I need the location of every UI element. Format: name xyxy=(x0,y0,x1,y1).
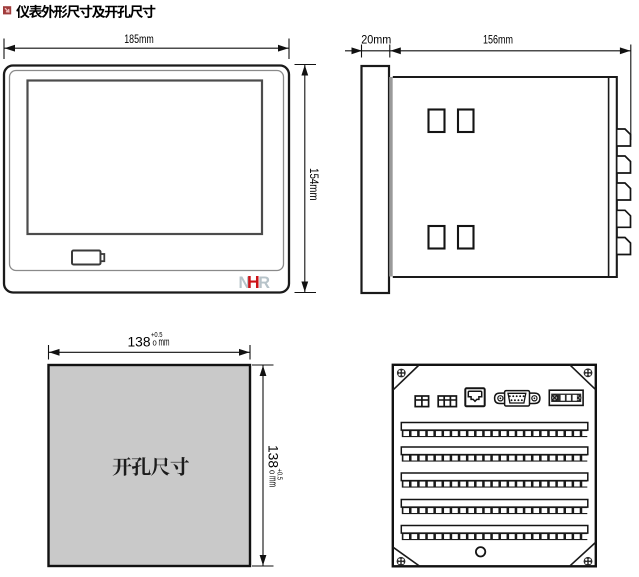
svg-text:138: 138 xyxy=(128,333,151,349)
svg-text:0: 0 xyxy=(153,339,157,348)
svg-text:185mm: 185mm xyxy=(124,32,154,46)
svg-text:156mm: 156mm xyxy=(483,33,513,47)
svg-text:138: 138 xyxy=(266,445,282,468)
svg-text:mm: mm xyxy=(159,336,170,348)
svg-text:R: R xyxy=(258,274,270,292)
svg-text:154mm: 154mm xyxy=(307,168,321,201)
svg-text:mm: mm xyxy=(267,476,279,487)
svg-text:0: 0 xyxy=(267,470,276,474)
svg-text:20mm: 20mm xyxy=(361,33,391,47)
